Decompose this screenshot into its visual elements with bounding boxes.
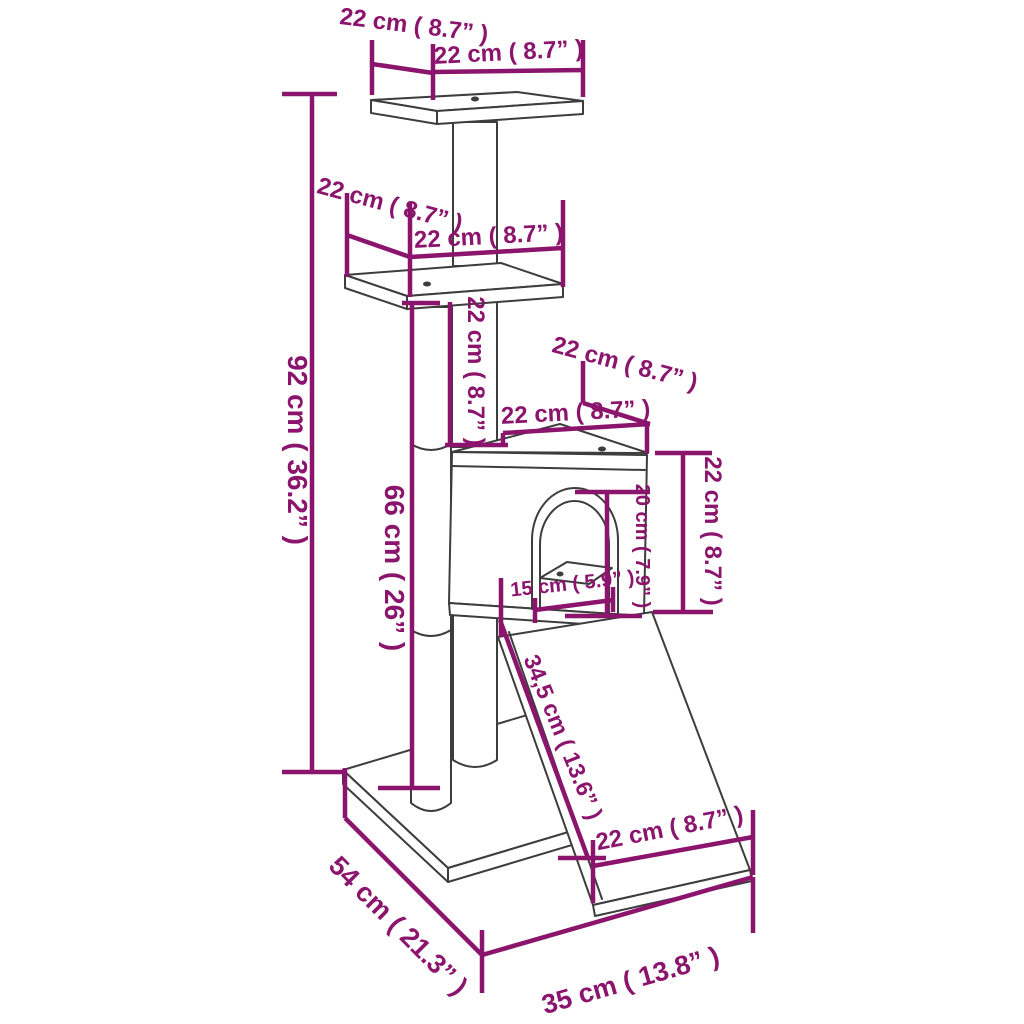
dim-top-platform-depth [372, 40, 433, 95]
dimension-diagram-canvas: 22 cm ( 8.7” ) 22 cm ( 8.7” ) 22 cm ( 8.… [0, 0, 1024, 1024]
dim-label-overall-height: 92 cm ( 36.2” ) [282, 355, 313, 545]
dim-label-door-height: 20 cm ( 7.9” ) [631, 484, 653, 609]
dim-label-house-height: 22 cm ( 8.7” ) [699, 456, 726, 605]
dim-label-upper-post-height: 22 cm ( 8.7” ) [462, 296, 489, 445]
top-platform [371, 92, 583, 124]
middle-platform [345, 263, 563, 309]
house-support-post [453, 607, 497, 767]
dim-label-main-post-height: 66 cm ( 26” ) [379, 485, 410, 652]
dim-label-house-roof-depth: 22 cm ( 8.7” ) [549, 331, 700, 396]
product-dimension-diagram: 22 cm ( 8.7” ) 22 cm ( 8.7” ) 22 cm ( 8.… [0, 0, 1024, 1024]
main-post [411, 307, 451, 811]
dim-label-base-width: 35 cm ( 13.8” ) [538, 941, 722, 1020]
